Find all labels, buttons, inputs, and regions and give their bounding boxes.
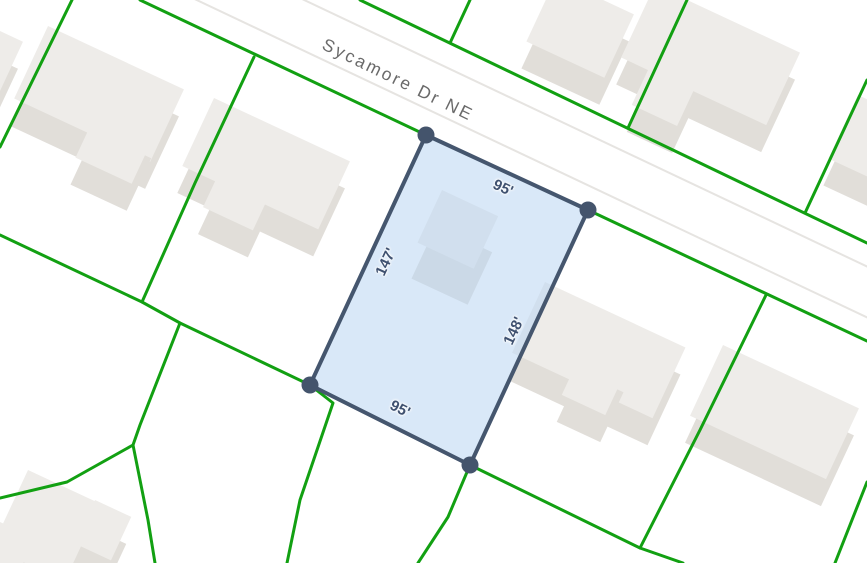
lot-corner-handle[interactable] <box>580 202 597 219</box>
parcel-boundary-line <box>287 385 333 563</box>
parcel-boundary-line <box>133 323 180 563</box>
lot-corner-handle[interactable] <box>462 457 479 474</box>
lot-corner-handle[interactable] <box>418 127 435 144</box>
map-viewport[interactable]: Sycamore Dr NE 95' 147' 148' 95' <box>0 0 867 563</box>
lot-corner-handle[interactable] <box>302 377 319 394</box>
parcel-boundary-line <box>140 0 426 135</box>
parcel-boundary-line <box>588 210 867 341</box>
parcel-boundary-line <box>450 0 470 43</box>
parcel-boundary-line <box>418 465 470 563</box>
parcel-boundary-line <box>835 482 867 563</box>
map-canvas <box>0 0 867 563</box>
